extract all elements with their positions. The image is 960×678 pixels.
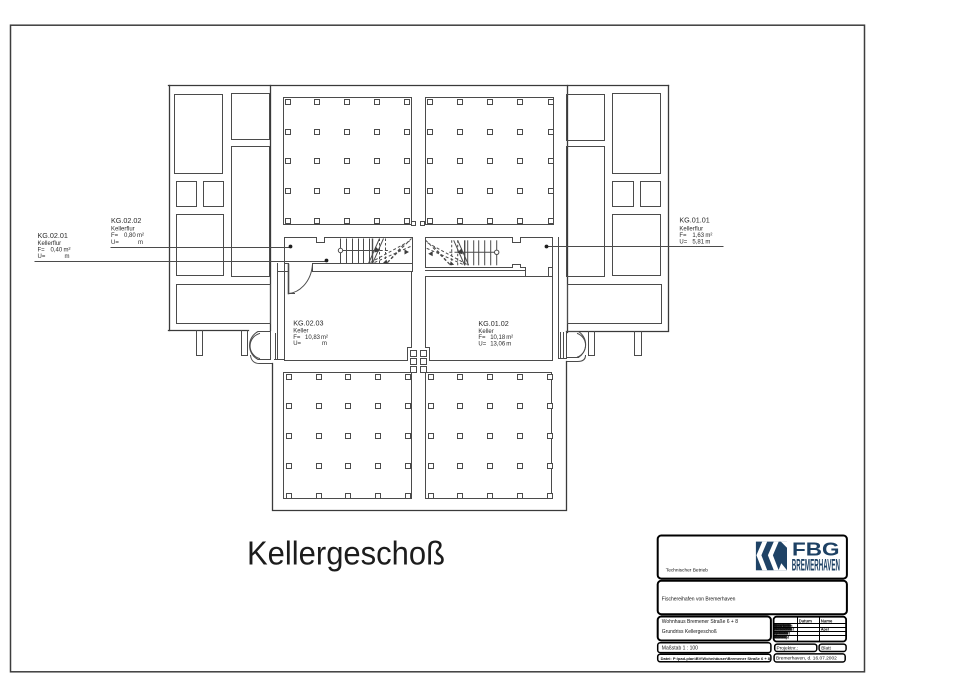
svg-text:U=: U= (38, 254, 46, 260)
svg-text:Keller: Keller (293, 328, 308, 334)
svg-text:m: m (506, 341, 511, 347)
svg-text:BREMERHAVEN: BREMERHAVEN (792, 556, 840, 574)
svg-text:m: m (65, 254, 70, 260)
svg-text:Blatt: Blatt (821, 645, 831, 651)
svg-text:Datei: P:\pad-plan\BV\Wohnhäus: Datei: P:\pad-plan\BV\Wohnhäuser\Bremene… (661, 656, 771, 661)
svg-text:5,81: 5,81 (692, 240, 704, 246)
svg-text:KG.02.02: KG.02.02 (111, 216, 141, 225)
svg-text:F=: F= (111, 233, 119, 239)
svg-text:m: m (138, 240, 143, 246)
svg-text:0,80: 0,80 (124, 233, 136, 239)
svg-text:Grundriss Kellergeschoß: Grundriss Kellergeschoß (662, 629, 717, 635)
svg-text:U=: U= (293, 341, 301, 347)
svg-text:Projektnr.:: Projektnr.: (777, 645, 799, 651)
svg-text:KG.02.03: KG.02.03 (293, 319, 323, 328)
svg-text:KG.02.01: KG.02.01 (38, 231, 68, 240)
svg-text:10,83: 10,83 (305, 335, 321, 341)
svg-text:10,18: 10,18 (490, 335, 506, 341)
svg-text:m²: m² (64, 247, 71, 253)
svg-text:Maßstab 1 : 100: Maßstab 1 : 100 (662, 645, 698, 651)
svg-text:U=: U= (679, 240, 687, 246)
svg-text:Kellerflur: Kellerflur (111, 227, 135, 233)
svg-text:1,63: 1,63 (692, 233, 704, 239)
svg-text:m²: m² (506, 335, 513, 341)
svg-text:KG.01.01: KG.01.01 (679, 215, 709, 224)
svg-text:13,06: 13,06 (490, 341, 506, 347)
svg-text:F=: F= (679, 233, 687, 239)
svg-text:Kellerflur: Kellerflur (679, 226, 703, 232)
svg-text:m²: m² (137, 233, 144, 239)
svg-text:Kellerflur: Kellerflur (38, 241, 62, 247)
svg-text:Technischer Betrieb: Technischer Betrieb (666, 567, 708, 573)
svg-text:Bremerhaven, d. 16.07.2002: Bremerhaven, d. 16.07.2002 (776, 656, 837, 662)
svg-text:Name: Name (821, 618, 833, 623)
svg-text:Datum: Datum (799, 618, 812, 623)
svg-text:Keller: Keller (478, 329, 493, 335)
svg-text:Apel: Apel (821, 628, 829, 632)
svg-text:F=: F= (293, 335, 301, 341)
svg-text:m: m (705, 240, 710, 246)
svg-text:Wohnhaus Bremener Straße 6 + 8: Wohnhaus Bremener Straße 6 + 8 (662, 619, 738, 625)
svg-text:U=: U= (111, 240, 119, 246)
svg-text:m²: m² (705, 233, 712, 239)
svg-text:Kellergeschoß: Kellergeschoß (247, 536, 445, 573)
svg-text:U=: U= (478, 341, 486, 347)
svg-text:KG.01.02: KG.01.02 (478, 319, 508, 328)
svg-text:0,40: 0,40 (51, 247, 63, 253)
svg-text:m²: m² (321, 335, 328, 341)
svg-text:F=: F= (478, 335, 486, 341)
svg-text:m: m (322, 341, 327, 347)
svg-text:F=: F= (38, 247, 46, 253)
svg-text:Fischereihafen von Bremerhaven: Fischereihafen von Bremerhaven (662, 596, 736, 602)
